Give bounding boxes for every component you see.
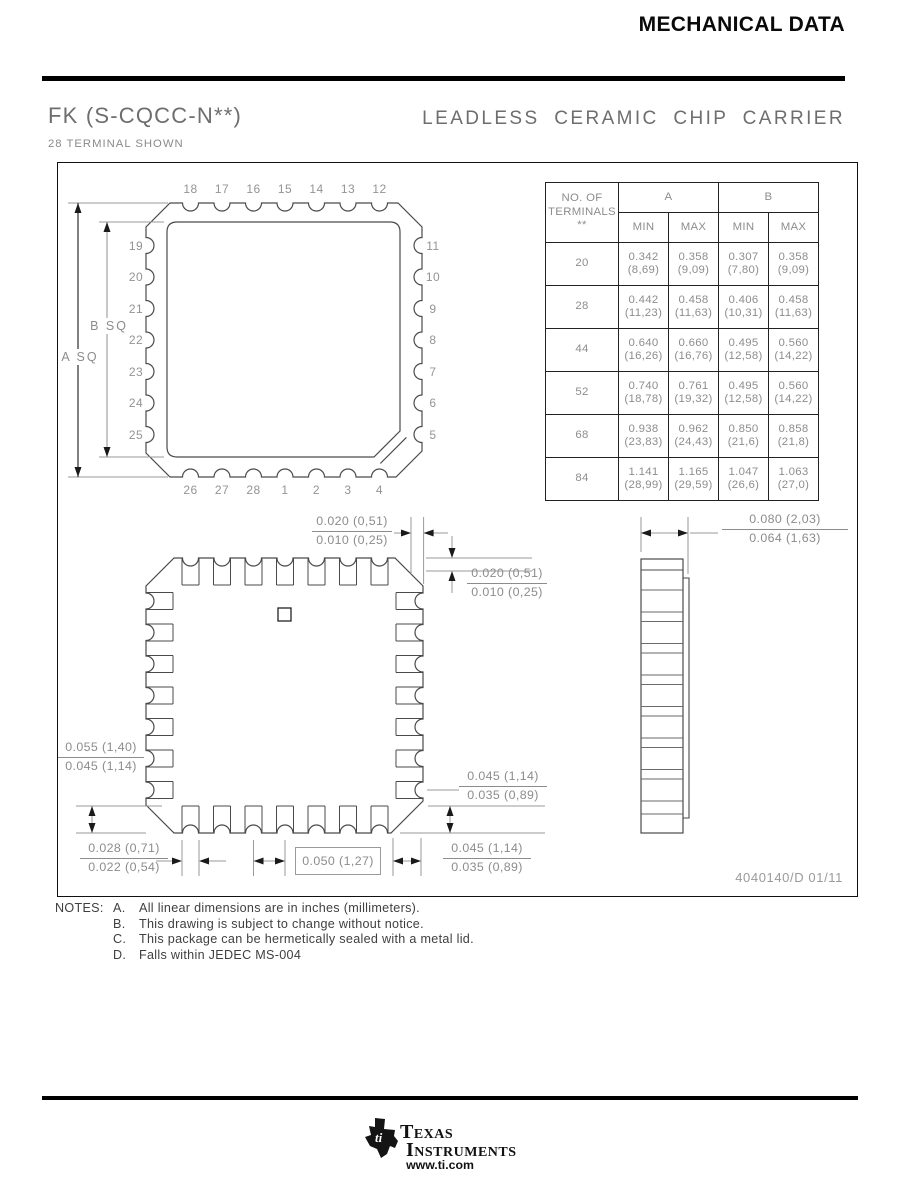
dim-right-lead: 0.020 (0,51) 0.010 (0,25) xyxy=(467,567,547,599)
page-title: MECHANICAL DATA xyxy=(639,13,845,37)
note-text: This package can be hermetically sealed … xyxy=(139,932,474,946)
pin-label: 17 xyxy=(215,182,229,196)
pin-label: 13 xyxy=(341,182,355,196)
hdr-line3: ** xyxy=(577,219,586,231)
dim-min: 0.045 (1,14) xyxy=(58,758,144,774)
cell: 0.442(11,23) xyxy=(619,286,669,329)
table-row: 28 0.442(11,23) 0.458(11,63) 0.406(10,31… xyxy=(546,286,819,329)
table-subheader: MAX xyxy=(669,213,719,243)
note-letter: C. xyxy=(113,932,139,948)
cell: 0.938(23,83) xyxy=(619,415,669,458)
terminals-dimension-table: NO. OF TERMINALS ** A B MIN MAX MIN MAX … xyxy=(545,182,819,501)
pin-label: 23 xyxy=(129,365,143,379)
dim-top-lead: 0.020 (0,51) 0.010 (0,25) xyxy=(312,515,392,547)
dim-thickness: 0.080 (2,03) 0.064 (1,63) xyxy=(722,513,848,545)
table-subheader: MIN xyxy=(719,213,769,243)
note-item: B.This drawing is subject to change with… xyxy=(55,917,474,933)
table-row: 84 1.141(28,99) 1.165(29,59) 1.047(26,6)… xyxy=(546,458,819,501)
dim-min: 0.035 (0,89) xyxy=(443,859,531,875)
pin-label: 8 xyxy=(429,333,436,347)
pin-label: 1 xyxy=(281,483,288,497)
pin-label: 12 xyxy=(372,182,386,196)
cell: 1.047(26,6) xyxy=(719,458,769,501)
cell-terminals: 28 xyxy=(546,286,619,329)
dim-lead-width: 0.028 (0,71) 0.022 (0,54) xyxy=(80,842,168,874)
table-subheader: MAX xyxy=(769,213,819,243)
pin-label: 10 xyxy=(426,270,440,284)
cell: 0.495(12,58) xyxy=(719,329,769,372)
note-text: All linear dimensions are in inches (mil… xyxy=(139,901,420,915)
pin-label: 19 xyxy=(129,239,143,253)
svg-text:ti: ti xyxy=(375,1130,383,1145)
pin-label: 20 xyxy=(129,270,143,284)
cell: 0.962(24,43) xyxy=(669,415,719,458)
note-letter: B. xyxy=(113,917,139,933)
dim-min: 0.064 (1,63) xyxy=(722,530,848,546)
table-row: 52 0.740(18,78) 0.761(19,32) 0.495(12,58… xyxy=(546,372,819,415)
cell: 0.406(10,31) xyxy=(719,286,769,329)
note-text: This drawing is subject to change withou… xyxy=(139,917,424,931)
pin-label: 27 xyxy=(215,483,229,497)
dim-min: 0.010 (0,25) xyxy=(312,532,392,548)
pin-label: 21 xyxy=(129,302,143,316)
dim-max: 0.028 (0,71) xyxy=(80,842,168,859)
cell: 0.358(9,09) xyxy=(769,243,819,286)
cell: 0.660(16,76) xyxy=(669,329,719,372)
drawing-number: 4040140/D 01/11 xyxy=(640,870,843,885)
table-row: 68 0.938(23,83) 0.962(24,43) 0.850(21,6)… xyxy=(546,415,819,458)
note-item: C.This package can be hermetically seale… xyxy=(55,932,474,948)
dim-max: 0.020 (0,51) xyxy=(312,515,392,532)
cell-terminals: 84 xyxy=(546,458,619,501)
table-header-terminals: NO. OF TERMINALS ** xyxy=(546,183,619,243)
package-code: FK (S-CQCC-N**) xyxy=(48,103,242,129)
note-letter: A. xyxy=(113,901,139,917)
a-square-dim-label: A SQ xyxy=(58,349,101,365)
pin-label: 9 xyxy=(429,302,436,316)
pin-label: 4 xyxy=(376,483,383,497)
cell-terminals: 52 xyxy=(546,372,619,415)
cell-terminals: 20 xyxy=(546,243,619,286)
dim-pitch-boxed: 0.050 (1,27) xyxy=(295,847,381,875)
pin-label: 3 xyxy=(344,483,351,497)
dim-bottom-corner: 0.045 (1,14) 0.035 (0,89) xyxy=(443,842,531,874)
pin-label: 6 xyxy=(429,396,436,410)
cell: 0.458(11,63) xyxy=(669,286,719,329)
top-rule xyxy=(42,76,845,81)
b-square-dim-label: B SQ xyxy=(87,318,131,334)
dim-max: 0.055 (1,40) xyxy=(58,741,144,758)
ti-website-url: www.ti.com xyxy=(364,1158,516,1172)
footer-rule xyxy=(42,1096,858,1100)
table-group-a: A xyxy=(619,183,719,213)
cell-terminals: 44 xyxy=(546,329,619,372)
terminal-count-note: 28 TERMINAL SHOWN xyxy=(48,138,184,150)
dim-left-corner: 0.055 (1,40) 0.045 (1,14) xyxy=(58,741,144,773)
pin-label: 15 xyxy=(278,182,292,196)
dim-right-corner: 0.045 (1,14) 0.035 (0,89) xyxy=(459,770,547,802)
dim-min: 0.035 (0,89) xyxy=(459,787,547,803)
cell: 0.458(11,63) xyxy=(769,286,819,329)
dim-max: 0.020 (0,51) xyxy=(467,567,547,584)
cell: 0.850(21,6) xyxy=(719,415,769,458)
cell: 0.740(18,78) xyxy=(619,372,669,415)
dim-min: 0.010 (0,25) xyxy=(467,584,547,600)
cell: 0.342(8,69) xyxy=(619,243,669,286)
note-text: Falls within JEDEC MS-004 xyxy=(139,948,301,962)
cell: 0.307(7,80) xyxy=(719,243,769,286)
cell: 0.858(21,8) xyxy=(769,415,819,458)
pin-label: 14 xyxy=(309,182,323,196)
notes-section: NOTES: A.All linear dimensions are in in… xyxy=(55,901,474,963)
dim-max: 0.080 (2,03) xyxy=(722,513,848,530)
dim-max: 0.045 (1,14) xyxy=(443,842,531,859)
cell: 1.141(28,99) xyxy=(619,458,669,501)
pin-label: 11 xyxy=(426,239,439,253)
cell: 1.165(29,59) xyxy=(669,458,719,501)
table-group-b: B xyxy=(719,183,819,213)
note-item: A.All linear dimensions are in inches (m… xyxy=(55,901,474,917)
hdr-line1: NO. OF xyxy=(561,192,602,204)
note-letter: D. xyxy=(113,948,139,964)
pin-label: 2 xyxy=(313,483,320,497)
mechanical-data-page: MECHANICAL DATA FK (S-CQCC-N**) LEADLESS… xyxy=(0,0,918,1188)
pin-label: 18 xyxy=(183,182,197,196)
pin-label: 22 xyxy=(129,333,143,347)
pin-label: 24 xyxy=(129,396,143,410)
cell: 0.761(19,32) xyxy=(669,372,719,415)
ti-logo-icon: ti xyxy=(364,1117,398,1159)
pin-label: 16 xyxy=(246,182,260,196)
table-row: 44 0.640(16,26) 0.660(16,76) 0.495(12,58… xyxy=(546,329,819,372)
note-item: D.Falls within JEDEC MS-004 xyxy=(55,948,474,964)
package-name: LEADLESS CERAMIC CHIP CARRIER xyxy=(422,108,845,130)
cell: 0.640(16,26) xyxy=(619,329,669,372)
dim-min: 0.022 (0,54) xyxy=(80,859,168,875)
cell: 1.063(27,0) xyxy=(769,458,819,501)
table-subheader: MIN xyxy=(619,213,669,243)
table-row: 20 0.342(8,69) 0.358(9,09) 0.307(7,80) 0… xyxy=(546,243,819,286)
pin-label: 5 xyxy=(429,428,436,442)
pin-label: 26 xyxy=(183,483,197,497)
dim-max: 0.045 (1,14) xyxy=(459,770,547,787)
cell: 0.560(14,22) xyxy=(769,372,819,415)
cell-terminals: 68 xyxy=(546,415,619,458)
cell: 0.560(14,22) xyxy=(769,329,819,372)
cell: 0.358(9,09) xyxy=(669,243,719,286)
hdr-line2: TERMINALS xyxy=(548,206,616,218)
pin-label: 7 xyxy=(429,365,436,379)
pin-label: 25 xyxy=(129,428,143,442)
pin-label: 28 xyxy=(246,483,260,497)
cell: 0.495(12,58) xyxy=(719,372,769,415)
